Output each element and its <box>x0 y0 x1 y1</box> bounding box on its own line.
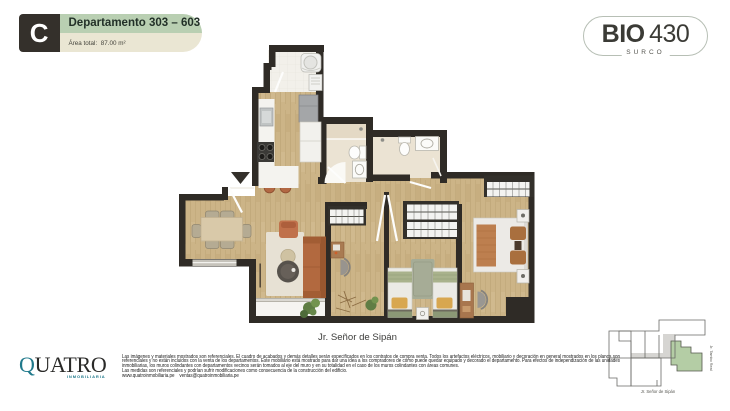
svg-text:Jr. Tambo Real: Jr. Tambo Real <box>709 345 713 370</box>
svg-text:Jr. Señor de Sipán: Jr. Señor de Sipán <box>641 389 676 394</box>
svg-text:Jr. Señor de Sipán: Jr. Señor de Sipán <box>318 332 397 343</box>
